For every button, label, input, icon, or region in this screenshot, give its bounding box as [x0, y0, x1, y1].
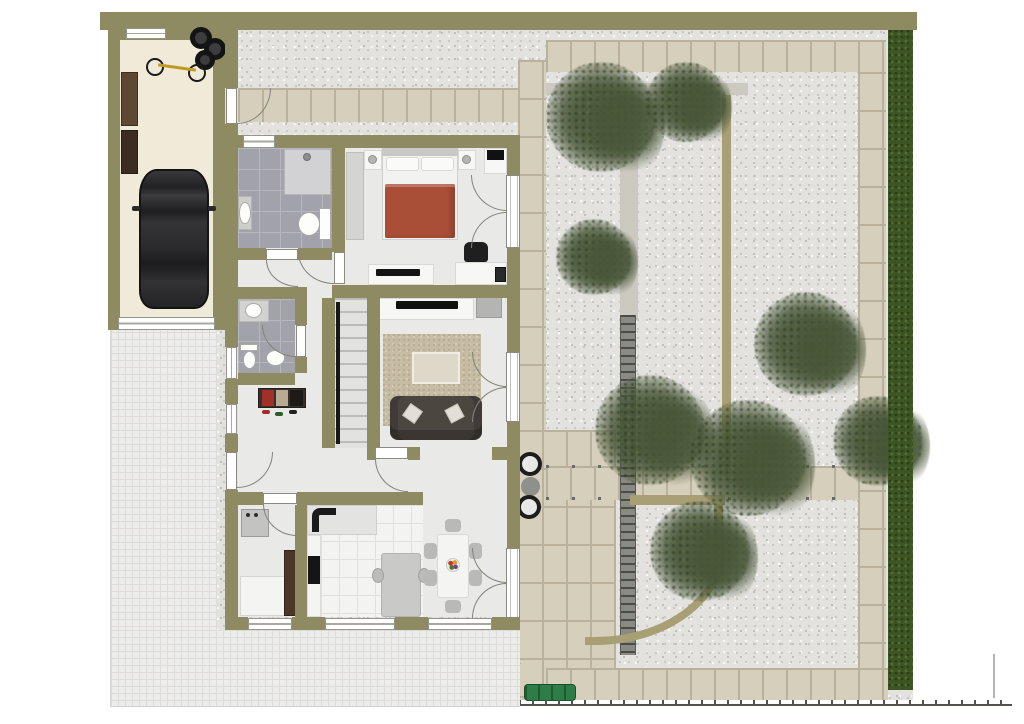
wall-kitchen-top: [225, 492, 263, 505]
bathroom-door: [266, 249, 298, 260]
printer: [495, 267, 506, 282]
dining-window: [428, 618, 492, 630]
shoes-icon: [289, 410, 297, 414]
sofa: [390, 396, 482, 440]
utility-door: [263, 493, 297, 504]
kitchen-island: [381, 553, 421, 617]
entry-door: [226, 452, 237, 490]
tree: [650, 501, 750, 601]
wall-bedroom-bottom: [332, 285, 520, 298]
garage-door: [118, 317, 215, 330]
side-boundary-wall: [225, 124, 238, 135]
coffee-table: [412, 352, 460, 384]
wall-left: [225, 379, 238, 404]
toilet-tank: [240, 344, 258, 351]
wall-top: [275, 135, 520, 148]
shoe-cabinet-box: [276, 390, 288, 406]
bathroom-lower-door: [296, 325, 306, 357]
wall-living-bottom-stub: [492, 447, 520, 460]
wall-left: [225, 434, 238, 452]
bathroom-window: [243, 135, 275, 148]
kitchen-window: [325, 618, 395, 630]
shoes-icon: [275, 412, 283, 416]
stair-rail: [336, 302, 340, 444]
wall-bath-lower-bottom: [238, 373, 295, 385]
shoes-icon: [262, 410, 270, 414]
car: [139, 169, 209, 309]
terrace-patio: [110, 630, 520, 707]
living-french-door: [506, 352, 520, 422]
storage-shelf: [121, 130, 138, 174]
floor-plan-canvas: [0, 0, 1024, 724]
fruit-bowl-icon: [446, 558, 460, 572]
tree: [595, 375, 705, 485]
shoe-cabinet-box: [290, 390, 303, 406]
wall-right: [507, 422, 520, 548]
bed-blanket: [385, 184, 455, 238]
bed-headboard: [382, 148, 458, 156]
wall-kitchen-top: [297, 492, 423, 505]
car-mirror: [208, 206, 216, 211]
corner-sink-icon: [312, 508, 336, 532]
toilet-bowl: [298, 212, 320, 236]
bicycle-wheel-icon: [188, 64, 206, 82]
wall-bottom: [395, 617, 428, 630]
wall-right: [507, 135, 520, 175]
wall-living-bottom: [367, 447, 375, 460]
stove-icon: [308, 556, 320, 584]
brick-path-house-front: [238, 88, 519, 122]
wall-bath-lower-right: [295, 287, 307, 325]
dining-chair: [445, 519, 461, 532]
dining-chair: [424, 543, 437, 559]
toilet-tank: [319, 208, 331, 240]
living-room-door: [375, 447, 408, 459]
bedroom-door: [334, 252, 345, 284]
shoe-cabinet-box-red: [262, 390, 274, 406]
flat-tv-icon: [376, 269, 420, 276]
wall-bottom: [292, 617, 325, 630]
side-boundary-wall: [225, 30, 238, 88]
dining-chair: [445, 600, 461, 613]
washer-knob-icon: [254, 513, 258, 517]
tree: [690, 400, 806, 516]
wall-stairs-right: [367, 298, 380, 447]
washer-knob-icon: [246, 513, 250, 517]
vanity-basin: [245, 303, 262, 318]
tree: [556, 219, 632, 295]
tree: [546, 62, 656, 172]
car-mirror: [132, 206, 140, 211]
wall-left: [225, 135, 238, 347]
wall-stairs-left: [322, 298, 335, 448]
dining-chair: [469, 570, 482, 586]
wall-bedroom-left: [332, 148, 345, 252]
tv-icon: [487, 150, 504, 160]
planter-pot: [521, 477, 540, 496]
watermark-mark: [993, 654, 995, 698]
wall-living-bottom: [408, 447, 420, 460]
tree: [646, 62, 726, 142]
wall-right: [507, 248, 520, 352]
wall-bath-lower-top: [238, 287, 295, 299]
wall-bottom: [225, 617, 248, 630]
tree: [754, 292, 858, 396]
wall-bath-lower-right: [295, 357, 307, 373]
bicycle-wheel-icon: [146, 58, 164, 76]
dining-french-door: [506, 548, 520, 618]
garden-gate: [226, 88, 237, 124]
brick-path-bottom: [546, 668, 888, 700]
chest-freezer: [240, 576, 285, 616]
dining-chair: [424, 570, 437, 586]
pillow: [421, 157, 454, 171]
planter-pot: [517, 495, 541, 519]
utility-window: [248, 618, 292, 630]
lamp-icon: [462, 155, 471, 164]
lamp-icon: [368, 155, 377, 164]
toilet-bowl: [243, 351, 256, 369]
wall-bottom: [492, 617, 520, 630]
flat-tv-icon: [396, 301, 458, 309]
planter-pot: [518, 452, 542, 476]
bottom-fence: [506, 700, 1012, 706]
garage-window: [126, 28, 166, 39]
pillow: [386, 157, 419, 171]
hedge: [888, 30, 913, 690]
hall-window: [226, 404, 237, 434]
island-chair: [372, 568, 384, 583]
wardrobe: [346, 152, 364, 240]
storage-shelf: [121, 72, 138, 126]
hall-window: [226, 347, 237, 379]
media-cabinet: [476, 297, 502, 318]
shower-head-icon: [303, 153, 311, 161]
wall-left: [225, 490, 238, 617]
washbasin: [239, 202, 251, 224]
wall-bath-top-bottom: [238, 248, 266, 260]
bedroom-french-door: [506, 175, 520, 248]
garden-bench: [524, 684, 576, 701]
